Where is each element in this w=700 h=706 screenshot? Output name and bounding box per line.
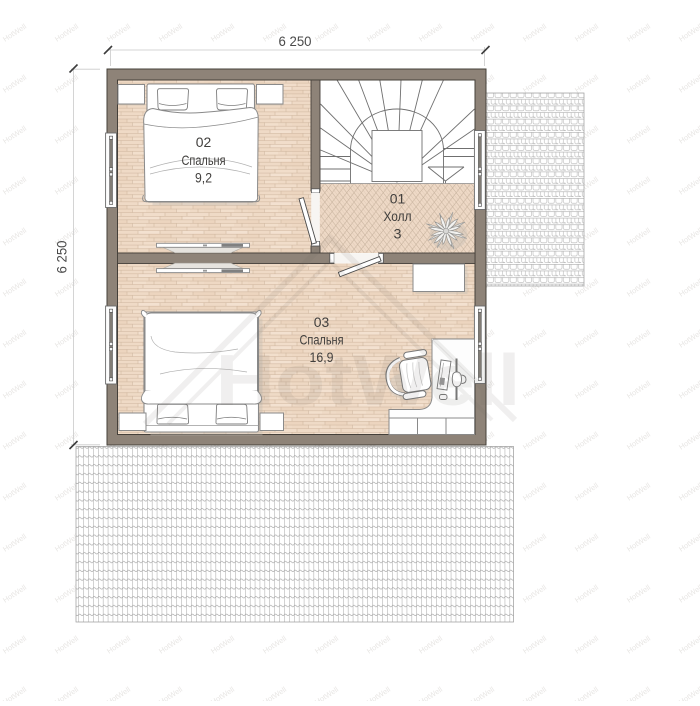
svg-text:02: 02 bbox=[196, 135, 212, 150]
svg-text:03: 03 bbox=[314, 315, 330, 330]
svg-text:HotWell: HotWell bbox=[216, 341, 521, 421]
svg-text:Холл: Холл bbox=[384, 209, 412, 224]
svg-text:6 250: 6 250 bbox=[279, 34, 312, 49]
svg-text:3: 3 bbox=[394, 227, 402, 242]
svg-text:9,2: 9,2 bbox=[195, 171, 212, 186]
svg-text:01: 01 bbox=[390, 192, 406, 207]
svg-text:6 250: 6 250 bbox=[55, 241, 70, 274]
svg-text:Спальня: Спальня bbox=[182, 153, 226, 168]
